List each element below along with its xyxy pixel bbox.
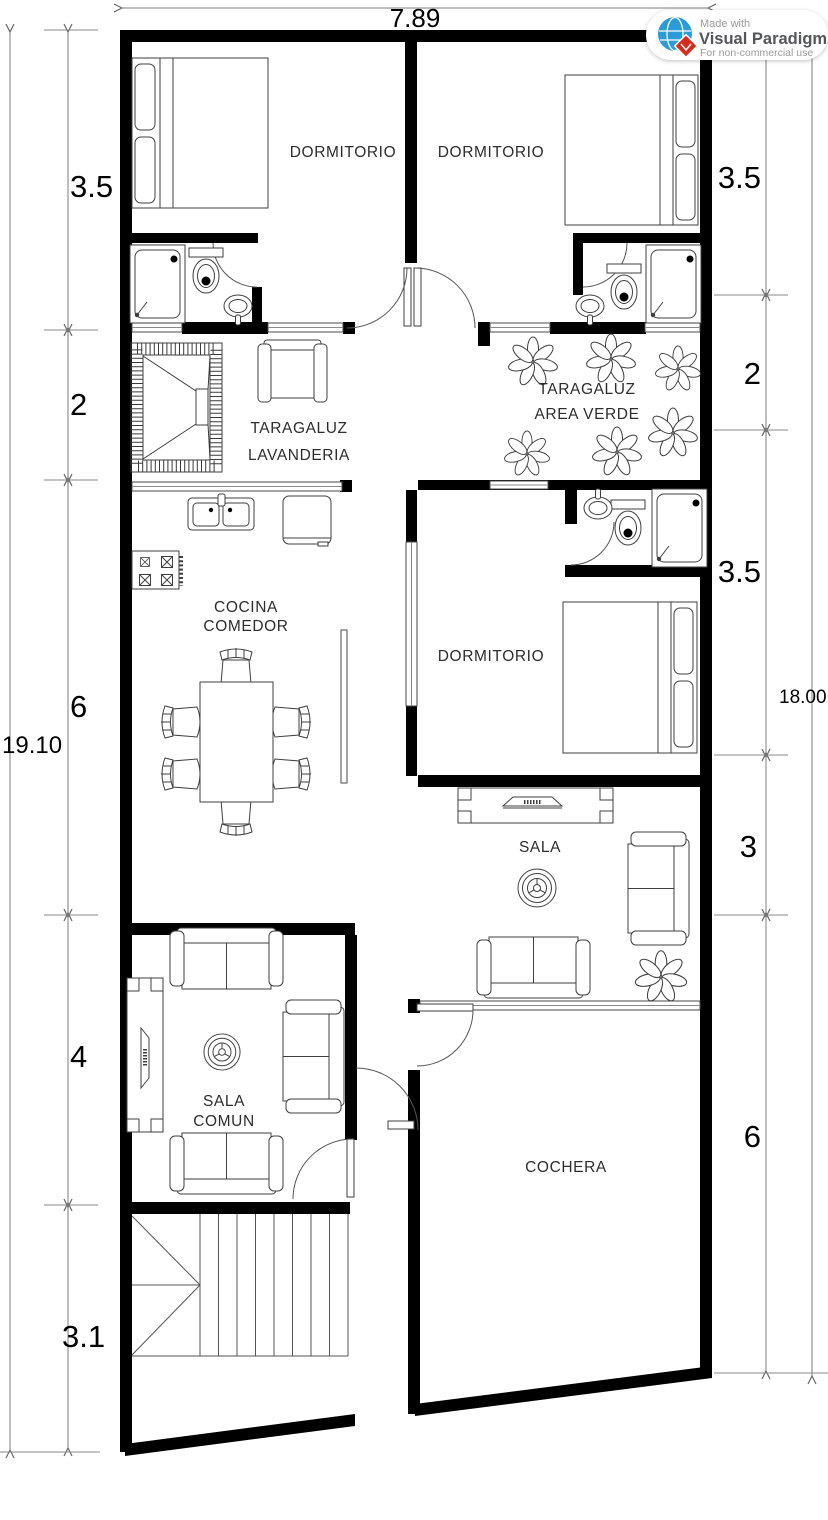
tv-console-sala [458,788,613,823]
ceiling-fan-icon [518,869,556,907]
shower-icon [652,489,707,567]
room-label-bedroom-top-left: DORMITORIO [290,144,396,161]
dim-left-segment-3: 4 [70,1039,87,1074]
room-label-kitchen-1: COCINA [214,599,278,616]
dim-left-total: 19.10 [2,732,62,759]
plant-icon [585,334,636,384]
room-label-living: SALA [519,839,561,856]
door-leaf [347,1139,354,1197]
dim-right-total: 18.00 [779,687,827,708]
chair-icon [161,706,200,738]
armchair [258,340,327,402]
chair-icon [220,648,252,687]
dim-left-segment-1: 2 [70,387,87,422]
room-label-garage: COCHERA [525,1159,607,1176]
plant-icon [507,337,558,387]
stairs [132,1214,348,1356]
sofa [170,928,283,989]
sink-icon [584,489,612,519]
chair-icon [161,758,200,790]
visual-paradigm-badge[interactable]: Made with Visual Paradigm For non-commer… [646,10,828,60]
dim-right-segment-3: 3 [740,829,757,864]
chair-icon [272,706,311,738]
dim-right-segment-2: 3.5 [718,554,761,589]
dim-top-width: 7.89 [390,3,441,33]
door-leaf [414,268,421,326]
toilet-icon [607,264,641,309]
laundry-basin [131,343,222,472]
toilet-icon [611,500,645,545]
room-label-bedroom-top-right: DORMITORIO [438,144,544,161]
kitchen-sink [188,494,254,530]
plant-icon [503,431,550,477]
ceiling-fan-icon [204,1034,240,1070]
room-label-bedroom-right: DORMITORIO [438,648,544,665]
plant-icon [591,427,642,477]
chair-icon [220,797,252,836]
badge-made-with: Made with [700,18,750,30]
dim-left-segment-4: 3.1 [62,1319,105,1354]
badge-license: For non-commercial use [700,47,813,59]
door-leaf [404,268,411,326]
dining-set [161,648,311,836]
door-leaf [417,1004,473,1011]
room-label-laundry-2: LAVANDERIA [248,447,350,464]
dim-right-segment-4: 6 [744,1119,761,1154]
bed-top-right [565,75,698,225]
sofa [477,937,590,998]
room-label-laundry-1: TARAGALUZ [250,420,347,437]
sink-icon [576,295,604,325]
stove [132,551,181,589]
room-label-common-1: SALA [203,1093,245,1110]
sofa [283,1000,344,1113]
bed-top-left [132,58,268,208]
plant-icon [654,346,701,392]
shower-icon [646,245,701,323]
sink-icon [224,295,252,325]
plant-icon [634,951,688,1003]
room-label-kitchen-2: COMEDOR [203,618,288,635]
plant-icon [647,408,698,458]
dim-left-segment-2: 6 [70,689,87,724]
bed-middle-right [563,602,697,753]
room-label-green-1: TARAGALUZ [538,381,635,398]
dining-table [200,682,273,802]
tv-icon [503,797,562,806]
toilet-icon [189,248,223,293]
floor-plan-canvas: 7.89 3.5 2 6 4 3.1 19.10 3.5 2 3.5 3 6 1… [0,0,828,1520]
dim-right-segment-0: 3.5 [718,160,761,195]
floor-plan-svg: 7.89 3.5 2 6 4 3.1 19.10 3.5 2 3.5 3 6 1… [0,0,828,1520]
chair-icon [272,758,311,790]
badge-brand: Visual Paradigm [699,30,827,48]
sofa [628,832,689,945]
door-leaf [388,1121,414,1129]
tv-console-comun [127,978,163,1132]
shower-icon [130,245,185,323]
sofa [170,1133,283,1194]
dim-right-segment-1: 2 [744,356,761,391]
room-label-green-2: AREA VERDE [534,406,639,423]
bathroom-top-left [130,245,252,325]
dim-left-segment-0: 3.5 [70,169,113,204]
refrigerator [283,496,331,546]
room-label-common-2: COMUN [193,1113,255,1130]
bathroom-middle-right [584,489,707,567]
